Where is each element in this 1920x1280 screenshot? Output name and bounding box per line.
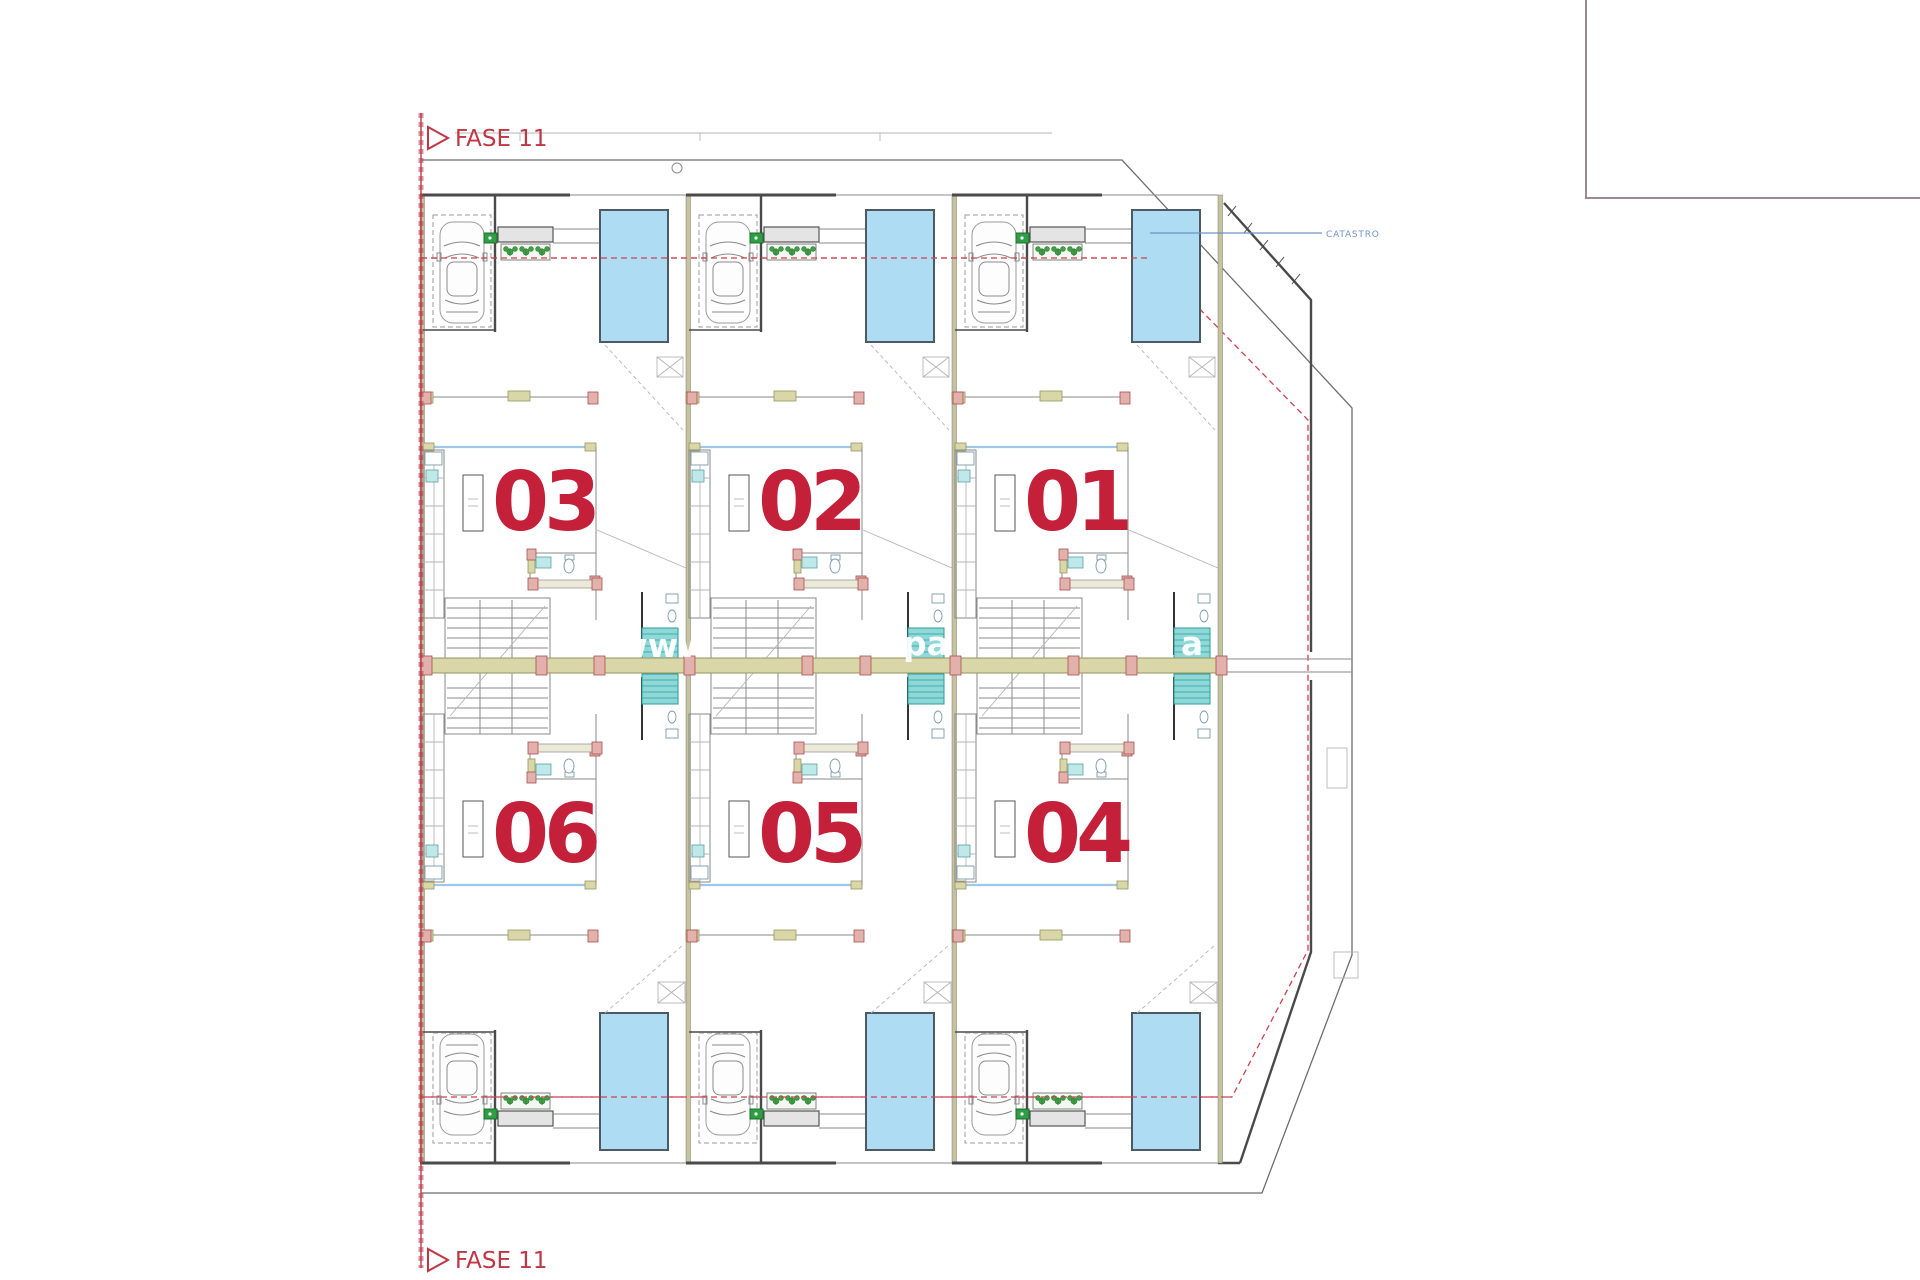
party-wall-right <box>1218 195 1223 1163</box>
phase-label-bottom: FASE 11 <box>455 1248 548 1274</box>
watermark-fragment-1: www <box>617 626 708 665</box>
building-face-right <box>1224 203 1311 652</box>
phase-marker-bottom: FASE 11 <box>428 1248 548 1274</box>
floorplan-page: FASE 11 FASE 11 CATASTRO 03 02 01 06 05 … <box>0 0 1920 1280</box>
catastro-label: CATASTRO <box>1326 230 1380 240</box>
unit-number-04: 04 <box>1024 787 1130 882</box>
dwelling-04 <box>952 674 1218 1163</box>
legend-frame <box>1586 0 1920 198</box>
site-plan-drawing: FASE 11 FASE 11 CATASTRO 03 02 01 06 05 … <box>0 0 1920 1280</box>
watermark-fragment-3: a <box>1181 624 1203 663</box>
survey-point-icon <box>672 163 682 173</box>
central-spine-wall <box>421 656 1352 675</box>
unit-number-03: 03 <box>492 455 596 550</box>
phase-marker-top: FASE 11 <box>428 126 548 152</box>
boundary-detail <box>1327 748 1347 788</box>
unit-number-05: 05 <box>758 787 862 882</box>
hatch-marks <box>1228 206 1300 284</box>
unit-number-01: 01 <box>1024 455 1128 550</box>
unit-number-06: 06 <box>492 787 597 882</box>
unit-number-02: 02 <box>758 455 862 550</box>
watermark-fragment-2: pa <box>903 624 949 663</box>
dwelling-05 <box>686 674 952 1163</box>
boundary-detail <box>1334 952 1358 978</box>
phase-label-top: FASE 11 <box>455 126 548 152</box>
dwelling-06 <box>420 674 686 1163</box>
